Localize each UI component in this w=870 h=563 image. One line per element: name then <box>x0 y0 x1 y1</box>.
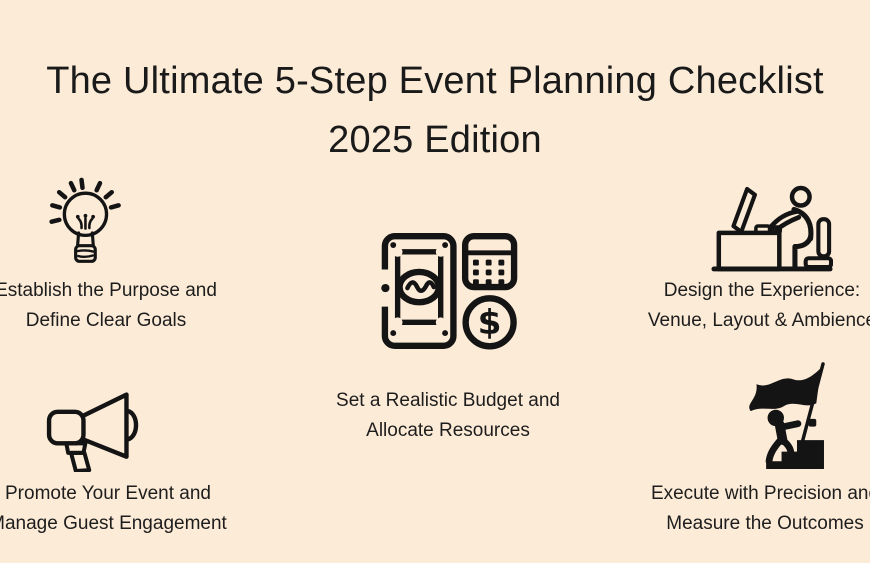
flag-climber-icon <box>737 361 829 469</box>
lightbulb-icon <box>36 177 130 280</box>
step-label-execute: Execute with Precision and Measure the O… <box>565 479 870 538</box>
step-design-line2: Venue, Layout & Ambience <box>562 306 870 336</box>
step-label-purpose: Establish the Purpose and Define Clear G… <box>0 276 306 335</box>
step-promote-line2: Manage Guest Engagement <box>0 509 308 539</box>
step-budget-line1: Set a Realistic Budget and <box>248 386 648 416</box>
page-title-line1: The Ultimate 5-Step Event Planning Check… <box>0 52 870 111</box>
step-promote-line1: Promote Your Event and <box>0 479 308 509</box>
step-design-line1: Design the Experience: <box>562 276 870 306</box>
step-purpose-line1: Establish the Purpose and <box>0 276 306 306</box>
step-label-promote: Promote Your Event and Manage Guest Enga… <box>0 479 308 538</box>
svg-text:$: $ <box>478 303 502 343</box>
step-label-design: Design the Experience: Venue, Layout & A… <box>562 276 870 335</box>
megaphone-icon <box>42 386 145 472</box>
step-execute-line2: Measure the Outcomes <box>565 509 870 539</box>
page-title: The Ultimate 5-Step Event Planning Check… <box>0 52 870 170</box>
step-purpose-line2: Define Clear Goals <box>0 306 306 336</box>
money-calculator-icon: $ <box>381 232 518 350</box>
step-label-budget: Set a Realistic Budget and Allocate Reso… <box>248 386 648 445</box>
step-budget-line2: Allocate Resources <box>248 416 648 446</box>
person-at-desk-icon <box>711 184 833 272</box>
step-execute-line1: Execute with Precision and <box>565 479 870 509</box>
page-title-line2: 2025 Edition <box>0 111 870 170</box>
infographic-canvas: The Ultimate 5-Step Event Planning Check… <box>0 0 870 563</box>
